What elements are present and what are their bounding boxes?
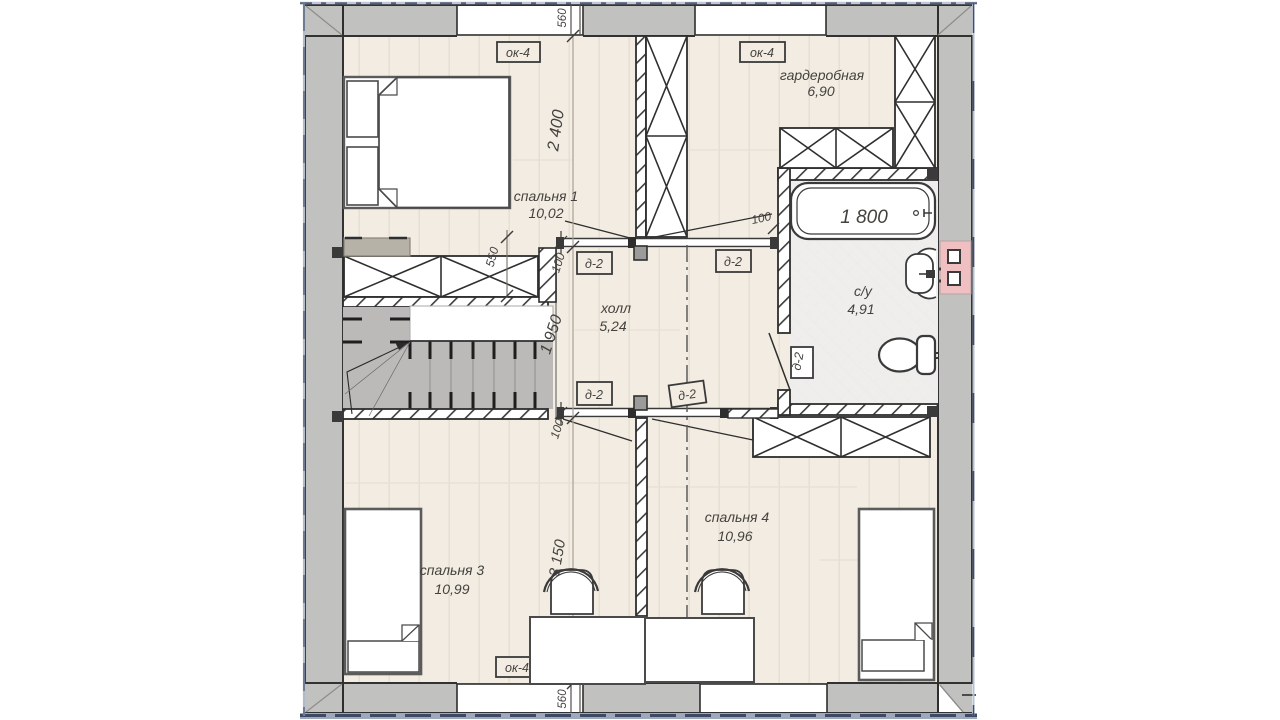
svg-text:560: 560 xyxy=(557,8,569,28)
svg-text:10,96: 10,96 xyxy=(717,528,752,544)
svg-text:холл: холл xyxy=(600,300,631,316)
svg-text:ок-4: ок-4 xyxy=(505,661,529,675)
svg-text:ок-4: ок-4 xyxy=(506,46,530,60)
svg-text:спальня 4: спальня 4 xyxy=(705,509,770,525)
svg-text:д-2: д-2 xyxy=(585,388,603,402)
svg-text:спальня 1: спальня 1 xyxy=(514,188,578,204)
svg-text:с/у: с/у xyxy=(854,283,873,299)
svg-text:6,90: 6,90 xyxy=(807,83,834,99)
svg-text:ок-4: ок-4 xyxy=(750,46,774,60)
svg-text:д-2: д-2 xyxy=(585,257,603,271)
svg-text:10,02: 10,02 xyxy=(528,205,563,221)
svg-text:5,24: 5,24 xyxy=(599,318,626,334)
svg-text:1 800: 1 800 xyxy=(840,207,888,228)
svg-text:д-2: д-2 xyxy=(677,387,697,403)
svg-text:гардеробная: гардеробная xyxy=(780,67,865,83)
svg-text:560: 560 xyxy=(557,689,569,709)
svg-text:4,91: 4,91 xyxy=(847,301,874,317)
svg-text:д-2: д-2 xyxy=(724,255,742,269)
svg-text:спальня 3: спальня 3 xyxy=(420,562,485,578)
svg-text:10,99: 10,99 xyxy=(434,581,469,597)
